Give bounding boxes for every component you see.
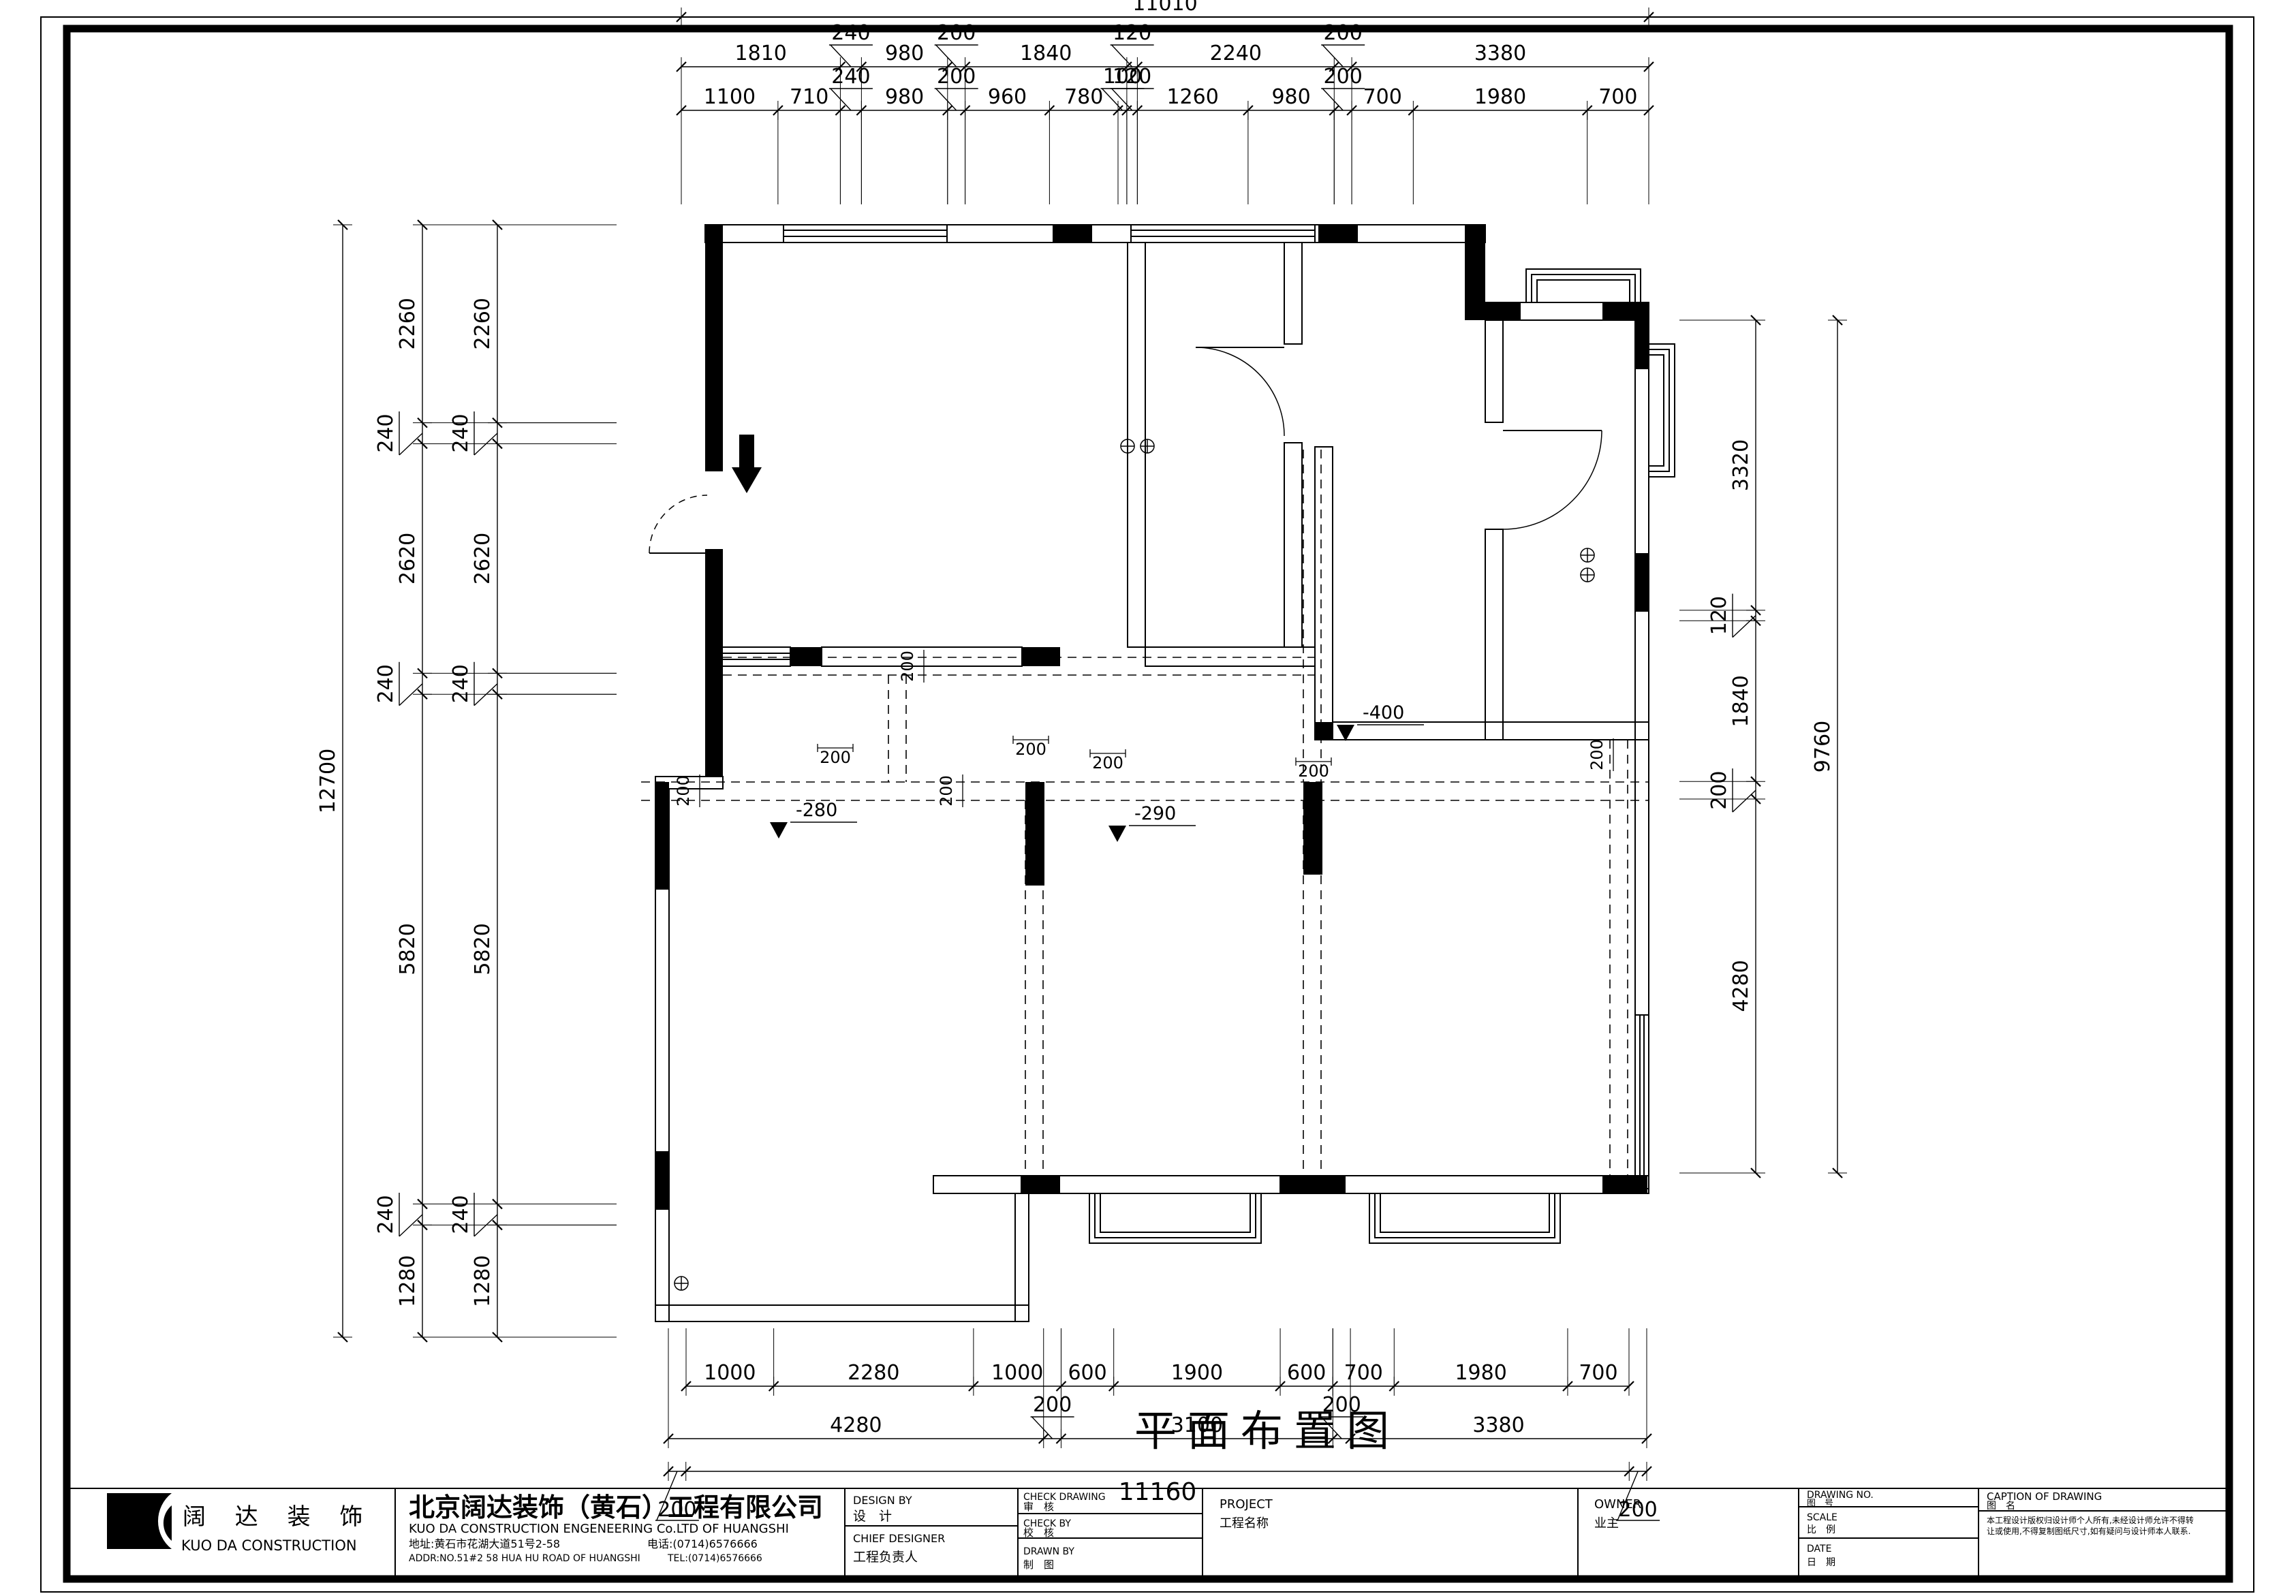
- dim-leader: [1322, 45, 1343, 67]
- dim-chain-bottom_row1: 10002280100060019006007001980700: [681, 1328, 1634, 1396]
- dim-label: 1840: [1020, 42, 1072, 65]
- column: [655, 782, 669, 890]
- dim-label: 240: [449, 413, 473, 452]
- column: [655, 1151, 669, 1210]
- balcony-bottom-wall: [655, 1305, 1029, 1321]
- dim-label: 1980: [1474, 85, 1526, 109]
- beam-dim-label: 200: [937, 774, 963, 807]
- dim-label: 1980: [1455, 1361, 1506, 1385]
- west-wall-upper-b: [705, 549, 723, 777]
- north-window-2: [1131, 225, 1315, 242]
- dim-label: 780: [1064, 85, 1103, 109]
- drain-icon: [1121, 439, 1134, 453]
- level-triangle-icon: [1337, 725, 1354, 741]
- field-drawing-no: 图 号: [1807, 1499, 1833, 1509]
- company-name-en: KUO DA CONSTRUCTION ENGENEERING Co.LTD O…: [409, 1522, 789, 1536]
- dim-label: 200: [937, 21, 976, 45]
- ne-room-left-wall-b: [1485, 529, 1503, 740]
- dim-label: 700: [1344, 1361, 1383, 1385]
- field-owner-en: OWNER: [1594, 1497, 1641, 1512]
- dim-label: 200: [1707, 771, 1731, 810]
- windows: [712, 225, 1675, 1243]
- beam-label-text: 200: [1015, 740, 1046, 759]
- dim-label: 4280: [830, 1413, 882, 1437]
- dim-label: 1100: [704, 85, 756, 109]
- column: [1022, 647, 1060, 666]
- column: [1021, 1176, 1060, 1193]
- column: [1303, 782, 1322, 875]
- drain-icon: [1581, 568, 1594, 582]
- dim-label: 980: [885, 42, 924, 65]
- dim-label: 2620: [471, 533, 495, 584]
- dim-leader: [1112, 45, 1132, 67]
- door-right-room: [1503, 431, 1602, 529]
- column: [1279, 1176, 1346, 1193]
- dim-label: 1280: [471, 1255, 495, 1307]
- dim-label: 3380: [1472, 1413, 1524, 1437]
- logo-text-cn: 阔 达 装 饰: [183, 1503, 373, 1531]
- level-triangle-icon: [1108, 826, 1126, 842]
- dim-label: 12700: [316, 749, 340, 813]
- dim-leader: [474, 1215, 497, 1236]
- company-name: 北京阔达装饰（黄石）工程有限公司: [409, 1492, 823, 1522]
- title-block-company: 北京阔达装饰（黄石）工程有限公司 KUO DA CONSTRUCTION ENG…: [409, 1492, 823, 1564]
- dim-label: 5820: [396, 923, 420, 975]
- east-window: [1635, 1015, 1649, 1189]
- company-tel-en: TEL:(0714)6576666: [667, 1553, 762, 1564]
- beam-label-text: 200: [1587, 739, 1607, 770]
- dim-leader: [936, 89, 957, 110]
- dim-label: 240: [449, 1195, 473, 1234]
- beam-label-text: 200: [898, 651, 917, 682]
- caption-note-1: 本工程设计版权归设计师个人所有,未经设计师允许不得转: [1987, 1515, 2194, 1525]
- dim-label: 1900: [1171, 1361, 1223, 1385]
- dim-label: 3320: [1729, 439, 1753, 491]
- dim-label: 1000: [704, 1361, 756, 1385]
- column: [1053, 225, 1092, 242]
- dim-label: 2240: [1210, 42, 1262, 65]
- dim-label: 11160: [1119, 1478, 1197, 1506]
- field-check-by: 校 核: [1023, 1527, 1054, 1539]
- level-triangle-icon: [770, 822, 788, 839]
- drain-icon: [1141, 439, 1154, 453]
- dim-chain-top_row2: 1100710240980200960780100120126098020070…: [677, 65, 1654, 204]
- column: [1318, 225, 1358, 242]
- floor-plan: [641, 225, 1675, 1321]
- dim-label: 240: [374, 1195, 398, 1234]
- walls-thin: [655, 225, 1649, 1321]
- door-bathroom: [1196, 347, 1284, 436]
- column: [1602, 302, 1649, 320]
- field-date-en: DATE: [1807, 1544, 1831, 1554]
- level-text: -290: [1134, 803, 1176, 824]
- dim-label: 200: [937, 65, 976, 89]
- column: [1602, 1176, 1647, 1193]
- partition-1: [1128, 242, 1145, 647]
- dim-label: 120: [1707, 596, 1731, 635]
- dim-chain-left_outer: 2260240262024058202401280: [449, 220, 617, 1342]
- field-project: 工程名称: [1220, 1516, 1269, 1531]
- level-marker: -280: [770, 800, 857, 839]
- dim-label: 1840: [1729, 675, 1753, 727]
- beam-dim-label: 200: [674, 774, 700, 807]
- drain-icon: [674, 1277, 688, 1290]
- beam-dim-label: 200: [1090, 749, 1126, 772]
- columns: [655, 225, 1649, 1210]
- dim-label: 980: [885, 85, 924, 109]
- dim-label: 11010: [1132, 0, 1197, 16]
- dim-label: 600: [1068, 1361, 1106, 1385]
- dim-label: 1280: [396, 1255, 420, 1307]
- dim-label: 200: [1324, 21, 1363, 45]
- dim-leader: [936, 45, 957, 67]
- door-entry: [649, 495, 707, 553]
- field-design-by: 设 计: [853, 1509, 892, 1524]
- dim-label: 3380: [1474, 42, 1526, 65]
- dim-chain-top_overall: 11010: [677, 0, 1654, 27]
- dim-label: 240: [831, 65, 870, 89]
- dim-leader: [474, 684, 497, 706]
- level-text: -280: [796, 800, 837, 821]
- dim-leader: [399, 684, 422, 706]
- field-project-en: PROJECT: [1220, 1497, 1273, 1512]
- dim-chain-right_inner: 332012018402004280: [1679, 315, 1765, 1178]
- dim-label: 1000: [991, 1361, 1043, 1385]
- beam-dim-label: 200: [1296, 757, 1331, 781]
- dim-label: 710: [790, 85, 828, 109]
- logo-text-en: KUO DA CONSTRUCTION: [181, 1537, 357, 1554]
- dim-chain-left_inner: 2260240262024058202401280: [374, 220, 617, 1342]
- field-owner: 业主: [1594, 1516, 1619, 1531]
- dim-label: 960: [988, 85, 1027, 109]
- ne-bay-window: [1526, 269, 1641, 302]
- dim-leader: [1733, 790, 1756, 812]
- partition-2a: [1284, 242, 1302, 344]
- dim-label: 2260: [396, 298, 420, 349]
- dim-label: 240: [831, 21, 870, 45]
- dim-label: 200: [1033, 1393, 1072, 1417]
- column: [1635, 320, 1649, 369]
- dim-chain-top_row1: 1810240980200184012022402003380: [677, 21, 1654, 204]
- dim-leader: [1102, 89, 1122, 110]
- east-bay-window: [1649, 344, 1675, 477]
- dim-label: 120: [1113, 65, 1151, 89]
- beam-label-text: 200: [1092, 753, 1123, 772]
- company-phone: 电话:(0714)6576666: [647, 1537, 758, 1550]
- dim-label: 2260: [471, 298, 495, 349]
- room1-bottom-wall-a: [822, 647, 1022, 666]
- dim-chain-right_overall: 9760: [1811, 315, 1847, 1178]
- field-drawn-by-en: DRAWN BY: [1023, 1546, 1074, 1557]
- partition-3: [1315, 447, 1333, 740]
- field-scale: 比 例: [1807, 1524, 1835, 1535]
- dim-label: 1260: [1166, 85, 1218, 109]
- field-drawn-by: 制 图: [1023, 1559, 1054, 1571]
- west-wall-upper-a: [705, 225, 723, 471]
- north-wall: [705, 225, 1485, 242]
- title-block-logo: 阔 达 装 饰 KUO DA CONSTRUCTION: [107, 1493, 373, 1554]
- beam-label-text: 200: [937, 775, 956, 807]
- dim-label: 200: [1324, 65, 1363, 89]
- dim-label: 240: [374, 664, 398, 703]
- level-marker: -290: [1108, 803, 1196, 842]
- beam-label-text: 200: [820, 748, 851, 767]
- dim-label: 9760: [1811, 721, 1835, 772]
- east-wall: [1635, 320, 1649, 1193]
- dim-leader: [399, 433, 422, 455]
- dim-label: 700: [1598, 85, 1637, 109]
- plan-caption: 平面布置图: [1134, 1406, 1400, 1456]
- beam-dim-label: 200: [1013, 736, 1049, 759]
- dim-label: 2620: [396, 533, 420, 584]
- plan-annotations: 200200200200200200200200-280-290-400: [674, 650, 1613, 842]
- dim-leader: [1032, 1417, 1053, 1439]
- column: [1465, 225, 1485, 320]
- partition-2b: [1284, 443, 1302, 647]
- dim-label: 5820: [471, 923, 495, 975]
- drawing-sheet: 1101018102409802001840120224020033801100…: [0, 0, 2296, 1596]
- beam-label-text: 200: [1298, 762, 1329, 781]
- dim-label: 4280: [1729, 960, 1753, 1012]
- column: [1485, 302, 1521, 320]
- dim-label: 240: [449, 664, 473, 703]
- beam-label-text: 200: [674, 775, 693, 807]
- field-scale-en: SCALE: [1807, 1512, 1837, 1523]
- field-chief-designer: 工程负责人: [853, 1550, 918, 1565]
- caption-note-2: 让或使用,不得复制图纸尺寸,如有疑问与设计师本人联系.: [1987, 1526, 2190, 1536]
- dim-label: 600: [1287, 1361, 1326, 1385]
- level-text: -400: [1363, 702, 1404, 723]
- field-check-drawing: 审 核: [1023, 1501, 1054, 1513]
- doors: [649, 347, 1602, 553]
- drain-symbols: [674, 439, 1594, 1290]
- company-address-en: ADDR:NO.51#2 58 HUA HU ROAD OF HUANGSHI: [409, 1553, 640, 1564]
- dim-leader: [1322, 89, 1343, 110]
- south-bay-window-2: [1369, 1193, 1560, 1243]
- entry-arrow-icon: [732, 435, 762, 493]
- dim-leader: [399, 1215, 422, 1236]
- room1-bottom-wall-b: [1145, 647, 1315, 666]
- balcony-right-wall: [1015, 1193, 1029, 1321]
- ne-room-left-wall-a: [1485, 320, 1503, 422]
- dim-label: 120: [1113, 21, 1151, 45]
- field-chief-designer-en: CHIEF DESIGNER: [853, 1532, 945, 1545]
- floorplan-svg: 1101018102409802001840120224020033801100…: [0, 0, 2296, 1596]
- field-date: 日 期: [1807, 1557, 1835, 1568]
- dim-label: 700: [1363, 85, 1402, 109]
- dim-chain-left_overall: 12700: [316, 220, 352, 1342]
- dim-label: 240: [374, 413, 398, 452]
- column: [790, 647, 822, 666]
- column: [1315, 722, 1333, 740]
- south-bay-window-1: [1089, 1193, 1261, 1243]
- field-design-by-en: DESIGN BY: [853, 1494, 912, 1507]
- field-caption: 图 名: [1987, 1501, 2015, 1512]
- dim-leader: [474, 433, 497, 455]
- dim-label: 1810: [735, 42, 787, 65]
- title-block-fields: DESIGN BY 设 计 CHIEF DESIGNER 工程负责人 CHECK…: [853, 1490, 2194, 1571]
- beam-dim-label: 200: [818, 744, 853, 767]
- dim-leader: [1733, 616, 1756, 638]
- dim-label: 2280: [848, 1361, 899, 1385]
- column: [1025, 782, 1044, 886]
- dim-label: 700: [1579, 1361, 1617, 1385]
- column: [1635, 553, 1649, 612]
- north-window-1: [784, 225, 947, 242]
- drain-icon: [1581, 548, 1594, 562]
- room1-window: [712, 647, 790, 666]
- company-address: 地址:黄石市花湖大道51号2-58: [409, 1537, 560, 1550]
- dim-label: 980: [1271, 85, 1310, 109]
